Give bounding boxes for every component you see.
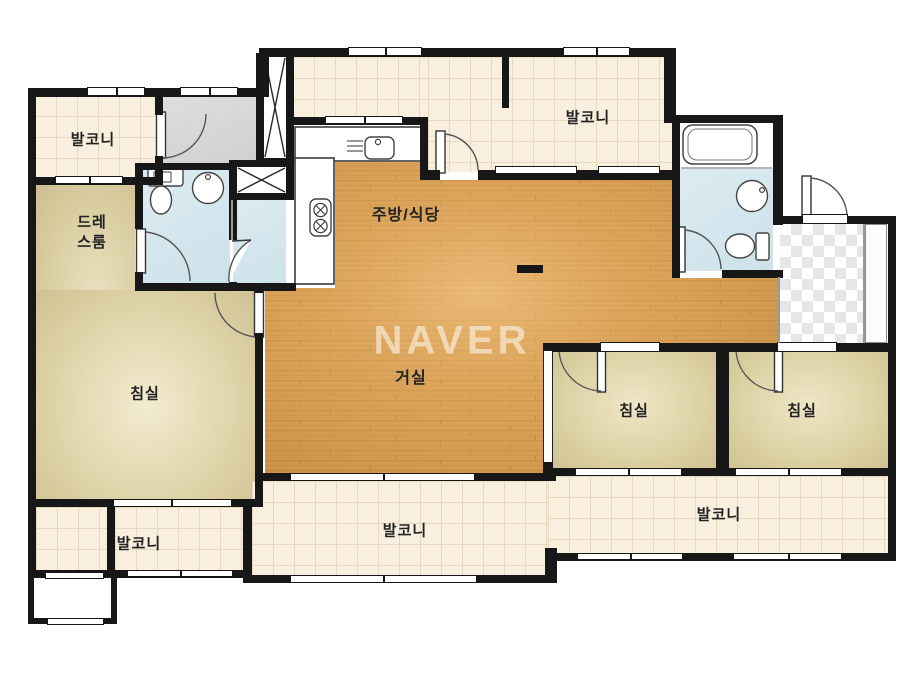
window-mullion	[385, 47, 387, 56]
toilet-fixture-master	[148, 168, 183, 214]
wall-segment	[233, 193, 294, 200]
label-balcony-bottom-right: 발코니	[697, 504, 741, 525]
bedroom-3-door	[736, 349, 783, 392]
window	[45, 572, 104, 579]
entry-edge-line	[778, 277, 780, 343]
kitchen-sink-fixture	[365, 137, 394, 159]
washbasin-fixture-2	[737, 181, 768, 212]
naver-watermark: NAVER	[373, 319, 530, 364]
window-mullion	[630, 553, 632, 560]
wall-segment	[664, 48, 676, 122]
wall-segment	[420, 117, 428, 180]
wall-segment	[502, 48, 509, 108]
bedroom-2-light-wall	[543, 350, 553, 464]
window	[600, 342, 660, 352]
label-kitchen-dining: 주방/식당	[372, 201, 440, 225]
label-balcony-bottom-center: 발코니	[383, 520, 427, 541]
bedroom-master-door	[215, 291, 264, 337]
floor-plan: 발코니 발코니 드레 스룸 주방/식당 거실 침실 침실 침실 발코니 발코니 …	[0, 0, 923, 676]
wall-segment	[664, 115, 783, 123]
wall-segment	[672, 115, 680, 278]
window-mullion	[788, 468, 790, 476]
wall-segment	[256, 53, 264, 165]
wall-segment	[233, 160, 294, 167]
window-mullion	[628, 468, 630, 476]
label-living-room: 거실	[395, 364, 426, 388]
toilet-fixture-2	[726, 233, 770, 260]
wall-segment	[672, 270, 678, 278]
label-balcony-top-left: 발코니	[71, 129, 115, 150]
window-mullion	[171, 499, 173, 507]
window	[495, 166, 577, 174]
window	[47, 618, 104, 625]
washbasin-fixture-master	[193, 173, 224, 204]
bedroom-2-door	[559, 349, 606, 392]
bedroom-2-wall-cap	[543, 462, 553, 476]
window-mullion	[383, 575, 385, 583]
label-bedroom-3: 침실	[787, 400, 817, 421]
wall-segment	[135, 163, 143, 229]
window-mullion	[383, 473, 385, 481]
utility-room-door	[157, 112, 207, 158]
living-kitchen-wood-floor	[265, 162, 778, 473]
window-mullion	[596, 47, 598, 56]
wall-segment	[255, 283, 263, 293]
window-mullion	[209, 87, 211, 96]
window	[802, 214, 848, 224]
label-bedroom-master: 침실	[130, 383, 160, 404]
wall-segment	[107, 505, 115, 578]
closet-edge-line	[863, 224, 865, 343]
dress-room-line2: 스룸	[77, 234, 107, 251]
label-dress-room: 드레 스룸	[77, 213, 107, 253]
bathtub-fixture	[681, 125, 772, 168]
window-mullion	[788, 553, 790, 560]
wall-segment	[155, 95, 163, 115]
shower-partition-line	[231, 200, 233, 240]
bathroom-master-door	[137, 229, 191, 281]
stove-fixture	[310, 199, 331, 236]
label-balcony-top-center: 발코니	[566, 107, 610, 128]
window-mullion	[364, 116, 366, 124]
balcony-access-door	[436, 131, 478, 173]
wall-segment	[111, 578, 117, 624]
dress-room-line1: 드레	[77, 214, 107, 231]
wall-segment	[716, 343, 729, 475]
label-balcony-bottom-left: 발코니	[117, 533, 161, 554]
wall-segment	[773, 115, 783, 225]
wall-segment	[888, 216, 896, 561]
window-mullion	[116, 87, 118, 96]
wall-segment	[243, 499, 252, 583]
entrance-door	[802, 176, 847, 219]
duct-x-brace-2	[238, 168, 285, 192]
wall-segment	[428, 170, 440, 180]
window-mullion	[89, 176, 91, 184]
wall-segment	[155, 156, 163, 185]
wall-segment	[255, 333, 263, 507]
window	[777, 342, 837, 352]
wall-segment	[135, 283, 296, 291]
shower-door	[229, 240, 251, 282]
wall-segment	[722, 270, 783, 278]
wall-segment	[517, 265, 543, 273]
label-bedroom-2: 침실	[619, 400, 649, 421]
wall-segment	[135, 163, 237, 170]
window	[598, 166, 660, 174]
window-mullion	[180, 570, 182, 577]
bathroom-2-door	[676, 227, 721, 272]
